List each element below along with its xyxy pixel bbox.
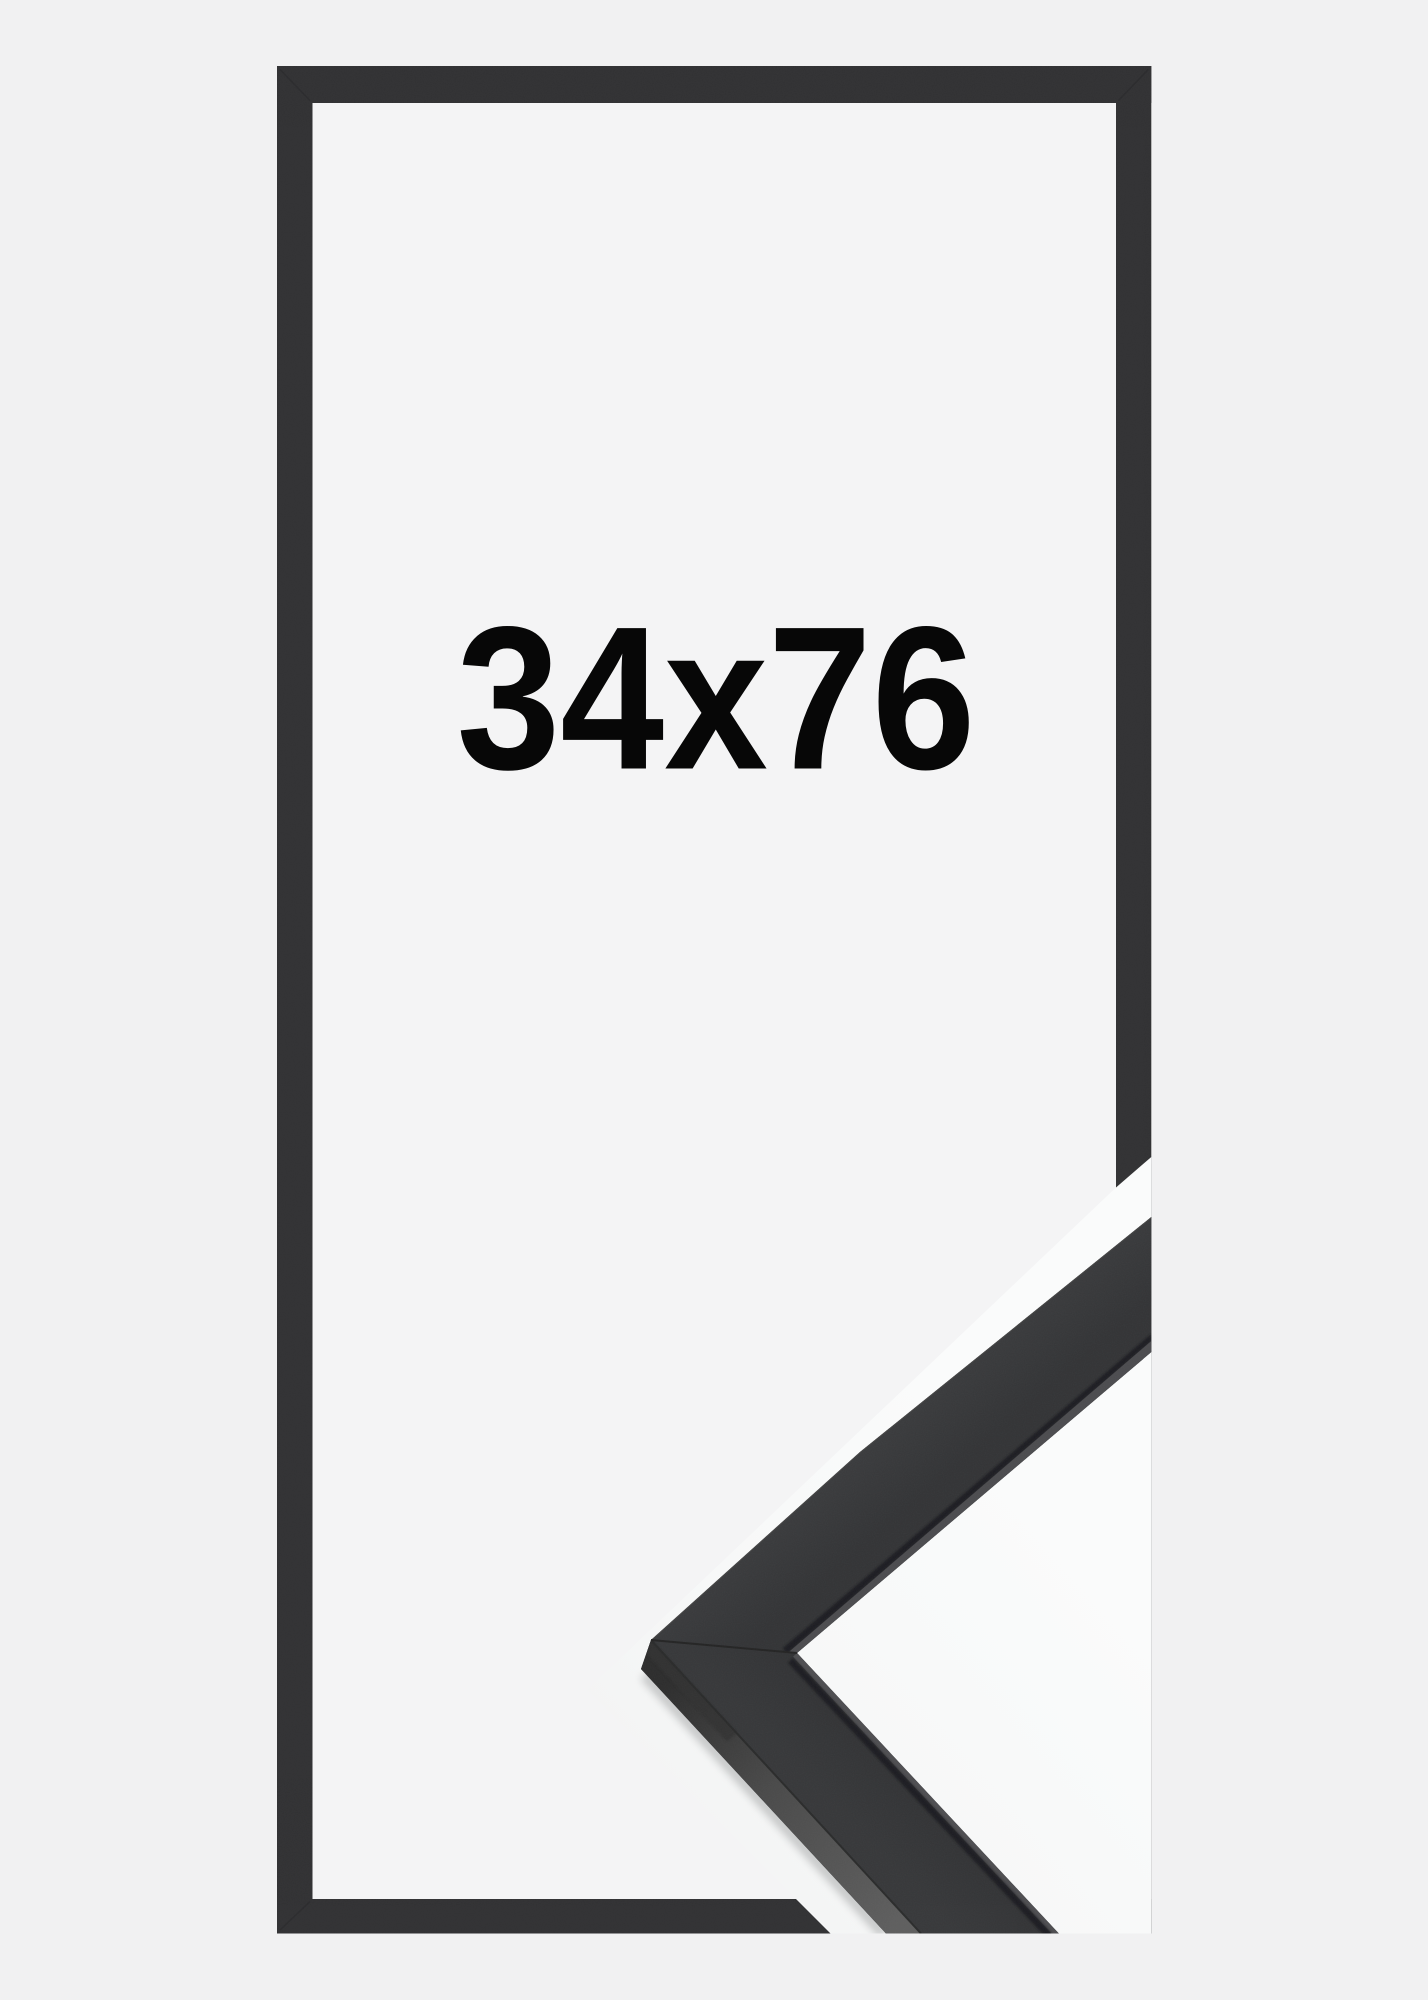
- svg-text:34x76: 34x76: [456, 585, 975, 812]
